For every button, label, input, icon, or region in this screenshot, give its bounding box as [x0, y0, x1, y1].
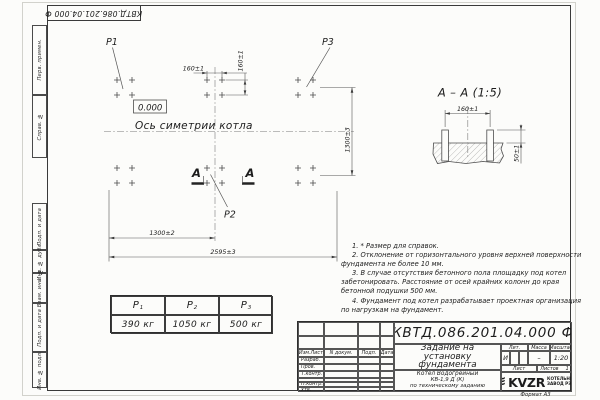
rev-header-data: Дата — [380, 349, 394, 357]
section-title: А – А (1:5) — [437, 86, 502, 100]
scale-value: 1:20 — [550, 351, 572, 365]
plan-view: 160±1 160±1 1300±3 1300±2 2595±3 — [104, 37, 356, 262]
label-p2: P2 — [224, 210, 236, 221]
strip-cell-sprav-n: Справ. № — [32, 95, 47, 158]
dim-row-spacing: 1300±3 — [345, 127, 352, 152]
sheets-cell: Листов 1 — [537, 365, 572, 372]
load-table-header-p2: P2 — [165, 296, 219, 315]
rev-header-n-dokum: N докум. — [324, 349, 358, 357]
sheet-label: Лист — [501, 365, 537, 372]
label-p1: P1 — [106, 37, 118, 48]
strip-cell-inv-podl: Инв. № подл. — [32, 352, 47, 388]
note-3: 3. В случае отсутствия бетонного пола пл… — [341, 269, 587, 296]
sign-row-tkontr: Т.контр. — [298, 371, 324, 378]
load-table-header-p3: P3 — [219, 296, 273, 315]
p1-leader — [113, 48, 124, 90]
p3-leader — [307, 48, 331, 88]
load-table-value-p1: 390 кг — [111, 315, 165, 334]
strip-cell-vzam-inv: Взам. инв. № — [32, 273, 47, 303]
lit-value: И — [501, 351, 510, 365]
section-letter-right: А — [245, 166, 255, 180]
elevation-value: 0.000 — [138, 103, 162, 113]
dim-bolt-protrusion: 50±1 — [514, 145, 521, 162]
axis-label: Ось симетрии котла — [135, 120, 253, 132]
label-p3: P3 — [322, 37, 334, 48]
title-block: Изм.Лист N докум. Подп. Дата Разраб. Про… — [297, 321, 571, 391]
sign-row-razrab: Разраб. — [298, 357, 324, 364]
sign-row-prov: Пров. — [298, 364, 324, 371]
doc-title: Задание на установку фундамента — [394, 344, 501, 370]
dim-half-span: 1300±2 — [149, 230, 174, 237]
company-logo-cell: ≋ KVZR КОТЕЛЬНЫЙ ЗАВОД РЭП — [501, 372, 572, 392]
company-name: КОТЕЛЬНЫЙ ЗАВОД РЭП — [547, 377, 572, 386]
format-label: Формат А3 — [500, 392, 571, 398]
p2-leader — [211, 175, 228, 208]
section-letter-left: А — [191, 166, 201, 180]
technical-notes: 1. * Размер для справок. 2. Отклонение о… — [341, 242, 587, 315]
mass-header: Масса — [528, 344, 550, 351]
coil-icon: ≋ — [501, 377, 506, 387]
dim-section-spacing: 160±1 — [457, 106, 478, 113]
scale-header: Масштаб — [550, 344, 572, 351]
note-4: 4. Фундамент под котел разрабатывает про… — [341, 297, 587, 315]
dim-total-span: 2595±3 — [210, 249, 235, 256]
load-table: P1 P2 P3 390 кг 1050 кг 500 кг — [110, 295, 272, 333]
dim-bolt-spacing-x: 160±1 — [183, 65, 204, 72]
strip-cell-perv-primen: Перв. примен. — [32, 25, 47, 95]
mass-value: – — [528, 351, 550, 365]
rev-header-podp: Подп. — [358, 349, 380, 357]
anchor-bolt-left — [442, 130, 449, 161]
note-2: 2. Отклонение от горизонтального уровня … — [341, 251, 587, 269]
note-1: 1. * Размер для справок. — [341, 242, 587, 251]
drawing-sheet: КВТД.086.201.04.000 Ф Перв. примен. Спра… — [0, 0, 600, 400]
dim-bolt-spacing-y: 160±1 — [238, 50, 245, 71]
section-view: А – А (1:5) 160±1 50±1 — [433, 86, 526, 164]
doc-number: КВТД.086.201.04.000 Ф — [394, 322, 572, 344]
anchor-bolt-right — [487, 130, 494, 161]
load-table-value-p3: 500 кг — [219, 315, 273, 334]
rev-header-izm-list: Изм.Лист — [298, 349, 324, 357]
load-table-value-p2: 1050 кг — [165, 315, 219, 334]
load-table-header-p1: P1 — [111, 296, 165, 315]
sign-row-utv: Утв. — [298, 387, 324, 392]
product-name: Котел Водогрейный КВ-1,9 Д (К) по технич… — [394, 370, 501, 392]
lit-header: Лит. — [501, 344, 528, 351]
strip-cell-podp-data-2: Подп. и дата — [32, 303, 47, 352]
logo-text: KVZR — [508, 375, 545, 390]
sheets-value: 1 — [566, 366, 569, 372]
